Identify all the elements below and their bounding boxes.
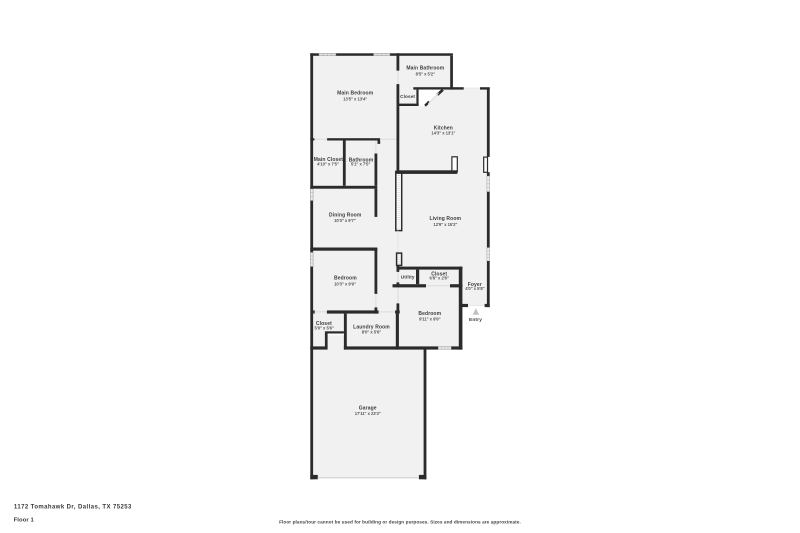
svg-text:9'11" x 9'9": 9'11" x 9'9" (419, 316, 440, 321)
svg-text:Closet: Closet (400, 94, 415, 99)
svg-text:8'5" x 5'2": 8'5" x 5'2" (416, 71, 435, 76)
svg-text:17'11" x 23'3": 17'11" x 23'3" (355, 411, 381, 416)
svg-text:6'8" x 2'6": 6'8" x 2'6" (430, 276, 449, 281)
svg-text:10'3" x 9'9": 10'3" x 9'9" (334, 282, 356, 287)
svg-text:5'1" x 7'5": 5'1" x 7'5" (351, 162, 370, 167)
svg-text:Utility: Utility (401, 274, 415, 279)
svg-text:10'3" x 9'7": 10'3" x 9'7" (334, 218, 356, 223)
svg-text:Bedroom: Bedroom (334, 276, 357, 282)
svg-text:4'0" x 5'8": 4'0" x 5'8" (465, 286, 484, 291)
svg-text:12'9" x 15'2": 12'9" x 15'2" (433, 222, 457, 227)
svg-text:Floor plans/tour cannot be use: Floor plans/tour cannot be used for buil… (279, 520, 521, 525)
svg-text:8'0" x 5'6": 8'0" x 5'6" (362, 329, 381, 334)
svg-text:14'3" x 13'1": 14'3" x 13'1" (431, 131, 455, 136)
svg-text:Entry: Entry (469, 317, 482, 323)
svg-text:Floor 1: Floor 1 (14, 517, 35, 523)
svg-text:4'10" x 7'5": 4'10" x 7'5" (317, 161, 339, 166)
svg-text:5'0" x 5'6": 5'0" x 5'6" (315, 325, 334, 330)
svg-text:13'5" x 13'4": 13'5" x 13'4" (343, 97, 367, 102)
svg-text:1172 Tomahawk Dr, Dallas, TX 7: 1172 Tomahawk Dr, Dallas, TX 75253 (14, 504, 132, 510)
